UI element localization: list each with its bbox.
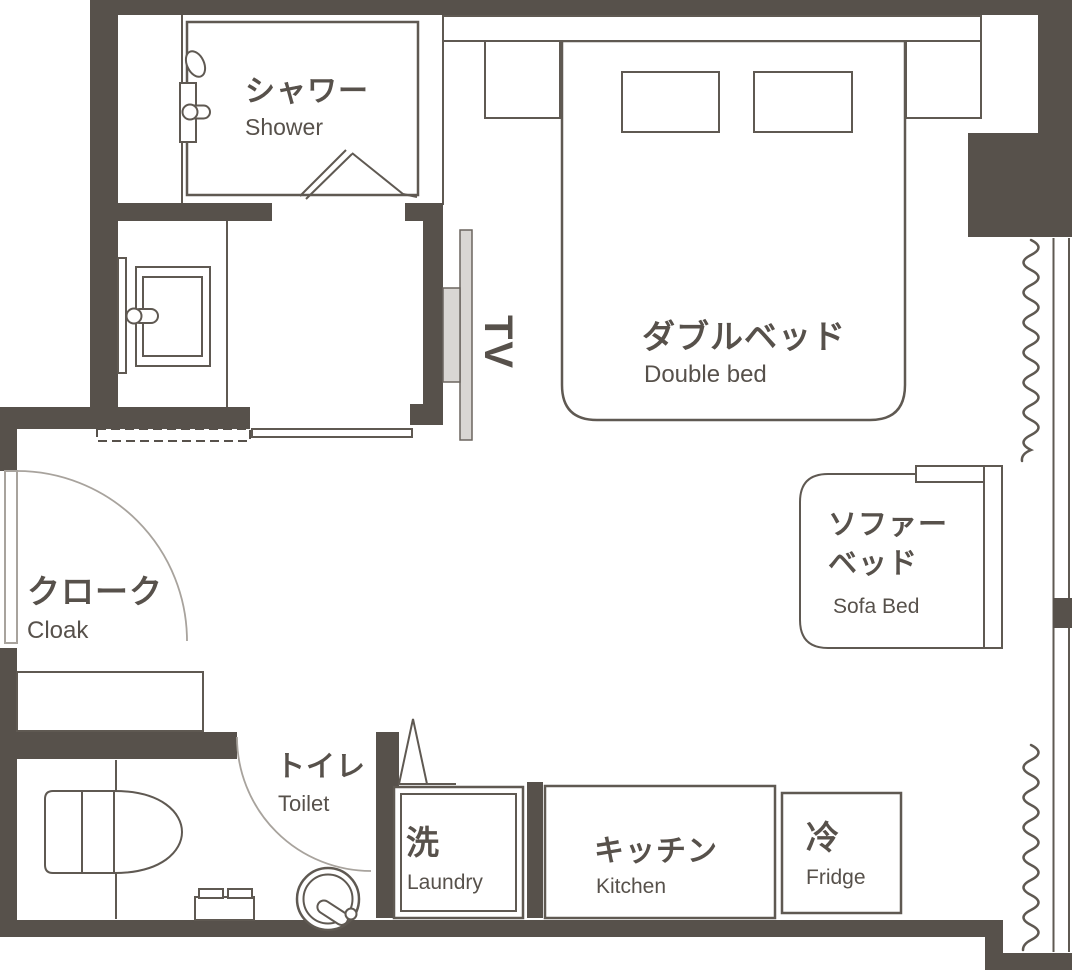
label-toilet-jp: トイレ	[276, 751, 366, 783]
sink-faucet-knob-icon	[346, 909, 357, 920]
wall-segment	[527, 782, 543, 918]
label-shower-jp: シャワー	[245, 75, 369, 108]
wall-segment	[90, 203, 272, 221]
label-cloak-jp: クローク	[27, 573, 163, 610]
label-sofa-bed-jp1: ソファー	[828, 509, 948, 541]
fridge-box	[782, 793, 901, 913]
wall-segment	[410, 404, 443, 425]
curtain-wavy-upper	[1022, 240, 1039, 461]
vanity-counter-edge	[118, 258, 126, 373]
vanity-room	[118, 258, 210, 373]
label-toilet-en: Toilet	[278, 791, 329, 816]
floor-plan-page: シャワー Shower ダブルベッド Double bed ソファー ベッド S…	[0, 0, 1072, 970]
label-sofa-bed-en: Sofa Bed	[833, 595, 919, 618]
toilet-sink	[297, 868, 359, 930]
wall-segment	[0, 648, 17, 937]
curtains	[1022, 240, 1039, 950]
nightstand-left	[485, 41, 560, 118]
label-double-bed-en: Double bed	[644, 361, 767, 388]
entrance-door-panel	[5, 471, 17, 643]
headboard	[443, 16, 981, 41]
wall-segment	[0, 407, 250, 429]
wall-segment	[0, 920, 1003, 937]
toilet-stool-pad	[199, 889, 223, 898]
pillow-right	[754, 72, 852, 132]
label-laundry-en: Laundry	[407, 871, 483, 894]
cloak-shelf	[17, 672, 203, 731]
wall-segment	[0, 732, 237, 759]
wall-segment	[1003, 953, 1072, 970]
sliding-door	[97, 429, 412, 441]
label-sofa-bed-jp2: ベッド	[828, 548, 918, 580]
laundry-door-triangle	[399, 719, 427, 784]
label-kitchen-en: Kitchen	[596, 875, 666, 898]
shower-room	[180, 22, 418, 199]
wall-segment	[968, 133, 1072, 237]
vanity-faucet-knob-icon	[127, 309, 142, 324]
window-mullion	[1053, 598, 1072, 628]
wall-segment	[90, 0, 1072, 15]
wall-segment	[0, 420, 17, 471]
toilet-stool-pad	[228, 889, 252, 898]
floor-plan: シャワー Shower ダブルベッド Double bed ソファー ベッド S…	[0, 0, 1072, 970]
shower-handle-knob-icon	[183, 105, 198, 120]
nightstand-right	[906, 41, 981, 118]
label-tv: TV	[476, 315, 520, 370]
label-double-bed-jp: ダブルベッド	[642, 318, 846, 355]
entrance-door-swing-arc	[17, 471, 187, 641]
sliding-door-panel	[252, 429, 412, 437]
label-cloak-en: Cloak	[27, 617, 89, 644]
curtain-wavy-lower	[1023, 745, 1039, 950]
label-laundry-jp: 洗	[406, 824, 440, 861]
pillow-left	[622, 72, 719, 132]
toilet-step-stool	[195, 897, 254, 920]
label-fridge-jp: 冷	[806, 819, 840, 856]
label-fridge-en: Fridge	[806, 866, 866, 889]
shower-enclosure	[187, 22, 418, 195]
wall-segment	[985, 920, 1003, 970]
sliding-door-track	[97, 429, 250, 441]
tv-board	[460, 230, 472, 440]
wall-segment	[423, 203, 443, 425]
sofa-backrest-right	[984, 466, 1002, 648]
label-kitchen-jp: キッチン	[594, 835, 718, 868]
bedroom	[443, 16, 981, 420]
window	[1054, 238, 1070, 952]
tv-unit	[443, 230, 472, 440]
tv-screen	[443, 288, 460, 382]
label-shower-en: Shower	[245, 114, 323, 140]
